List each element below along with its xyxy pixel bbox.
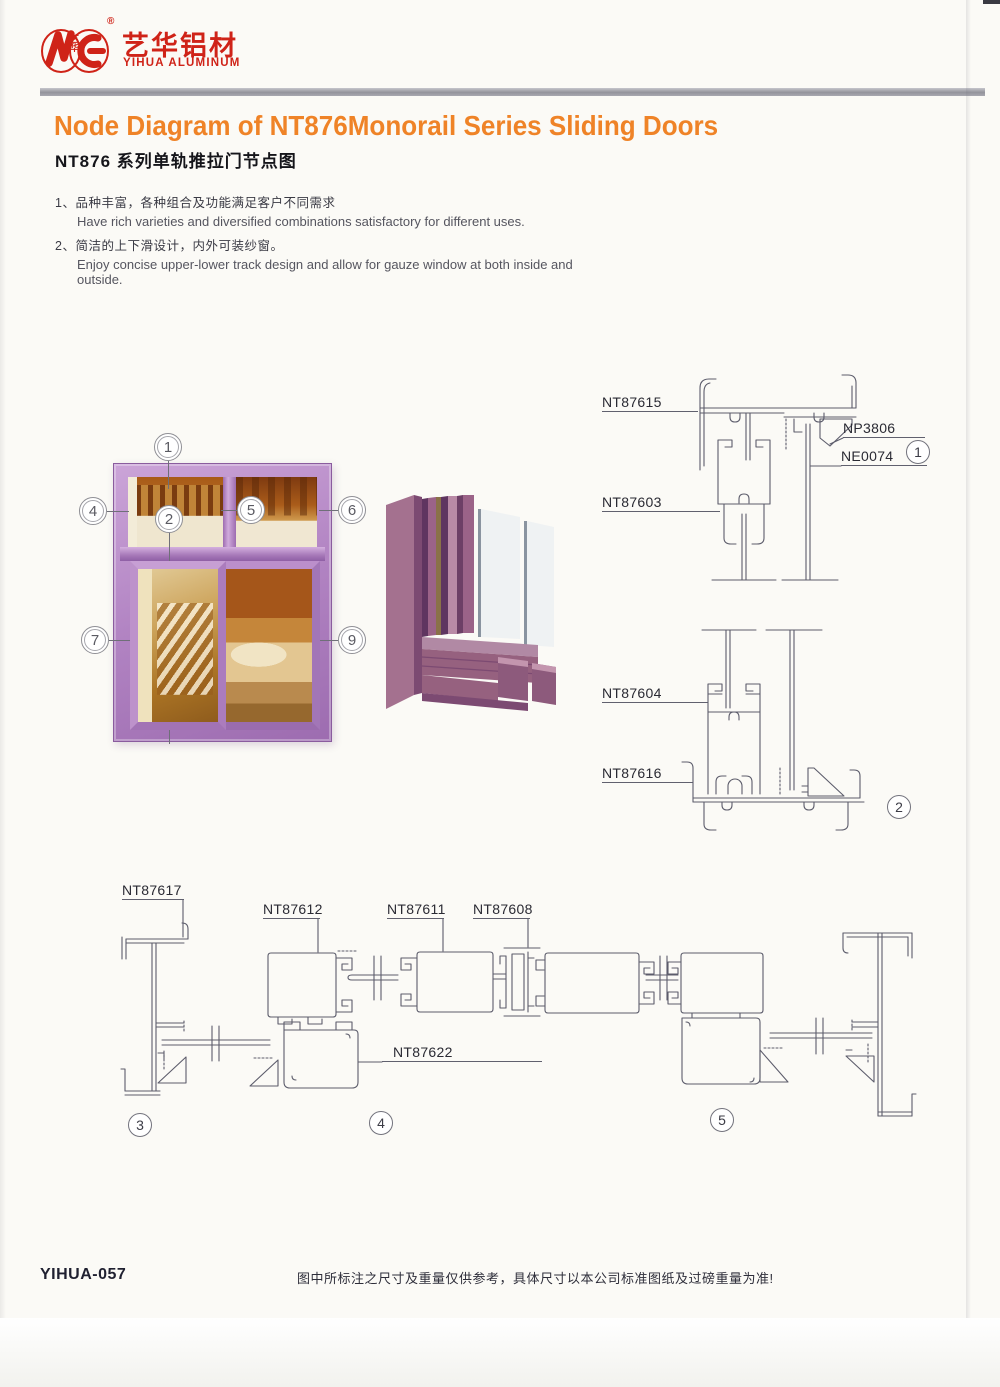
callout-circle-2: 2	[155, 505, 183, 533]
feature-1-en: Have rich varieties and diversified comb…	[77, 214, 595, 229]
feature-list: 1、品种丰富，各种组合及功能满足客户不同需求 Have rich varieti…	[55, 192, 595, 293]
upper-mullion	[223, 477, 236, 547]
callout-circle-7: 7	[81, 626, 109, 654]
page-title-en: Node Diagram of NT876Monorail Series Sli…	[54, 110, 718, 142]
label-nt87604: NT87604	[602, 686, 708, 703]
scan-corner-mark	[983, 0, 1000, 4]
window-elevation-image	[113, 463, 332, 742]
detail-circle-4: 4	[369, 1111, 393, 1135]
callout-circle-1: 1	[154, 433, 182, 461]
leader-line	[319, 640, 338, 641]
left-sliding-panel	[130, 561, 226, 730]
detail-circle-5: 5	[710, 1108, 734, 1132]
leader-line	[107, 511, 129, 512]
catalog-page: 艺华 ® 艺华铝材 YIHUA ALUMINUM Node Diagram of…	[0, 0, 1000, 1387]
callout-circle-4: 4	[79, 497, 107, 525]
page-bottom-band	[0, 1318, 1000, 1387]
label-nt87622: NT87622	[382, 1045, 542, 1062]
label-nt87612: NT87612	[263, 902, 320, 919]
label-nt87615: NT87615	[602, 395, 698, 412]
detail-5-drawing	[640, 918, 940, 1118]
label-np3806: NP3806	[843, 421, 925, 438]
page-code: YIHUA-057	[40, 1266, 126, 1284]
detail-circle-1: 1	[906, 440, 930, 464]
detail-circle-2: 2	[887, 795, 911, 819]
feature-1-num: 1、	[55, 196, 75, 210]
feature-2-num: 2、	[55, 239, 75, 253]
feature-1-cn: 1、品种丰富，各种组合及功能满足客户不同需求	[55, 192, 595, 211]
right-sliding-panel	[218, 561, 320, 730]
transom-bar	[120, 547, 325, 561]
leader-line	[168, 461, 169, 489]
leader-line	[319, 510, 338, 511]
label-nt87617: NT87617	[122, 883, 184, 900]
logo-monogram: 艺华	[69, 34, 79, 58]
registered-mark: ®	[107, 16, 114, 27]
disclaimer-text: 图中所标注之尺寸及重量仅供参考，具体尺寸以本公司标准图纸及过磅重量为准!	[297, 1268, 774, 1287]
callout-circle-5: 5	[237, 496, 265, 524]
feature-2-en: Enjoy concise upper-lower track design a…	[77, 257, 595, 287]
brand-name-en: YIHUA ALUMINUM	[123, 57, 241, 69]
feature-2-cn: 2、简洁的上下滑设计，内外可装纱窗。	[55, 235, 595, 254]
page-fold-shadow	[966, 0, 971, 1330]
page-left-shadow	[0, 0, 6, 1387]
detail-circle-3: 3	[128, 1113, 152, 1137]
callout-circle-9: 9	[338, 626, 366, 654]
detail-4-drawing	[248, 918, 680, 1118]
page-title-cn: NT876 系列单轨推拉门节点图	[55, 147, 297, 172]
profile-3d-render	[378, 487, 573, 722]
header-divider-bar	[40, 88, 985, 96]
callout-circle-6: 6	[338, 496, 366, 524]
leader-line	[221, 510, 237, 511]
label-nt87616: NT87616	[602, 766, 693, 783]
label-nt87603: NT87603	[602, 495, 720, 512]
label-nt87611: NT87611	[387, 902, 444, 919]
label-nt87608: NT87608	[473, 902, 530, 919]
